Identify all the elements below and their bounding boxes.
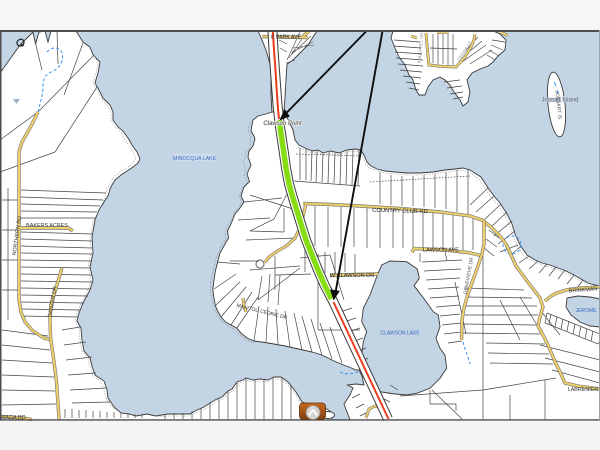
svg-text:MINOCQUA LAKE: MINOCQUA LAKE [173,156,216,162]
svg-text:JEROME: JEROME [576,308,598,314]
svg-text:BAKERS ACRES: BAKERS ACRES [26,223,68,229]
svg-text:LAWSON AVE: LAWSON AVE [423,248,459,254]
svg-text:W CLAWSON DR: W CLAWSON DR [330,273,375,279]
svg-text:LABRENIER: LABRENIER [568,387,599,393]
svg-text:CLAWSON LAKE: CLAWSON LAKE [380,331,420,337]
svg-text:E PARK AVE: E PARK AVE [271,35,301,41]
svg-text:Clawson Point: Clawson Point [263,121,302,127]
